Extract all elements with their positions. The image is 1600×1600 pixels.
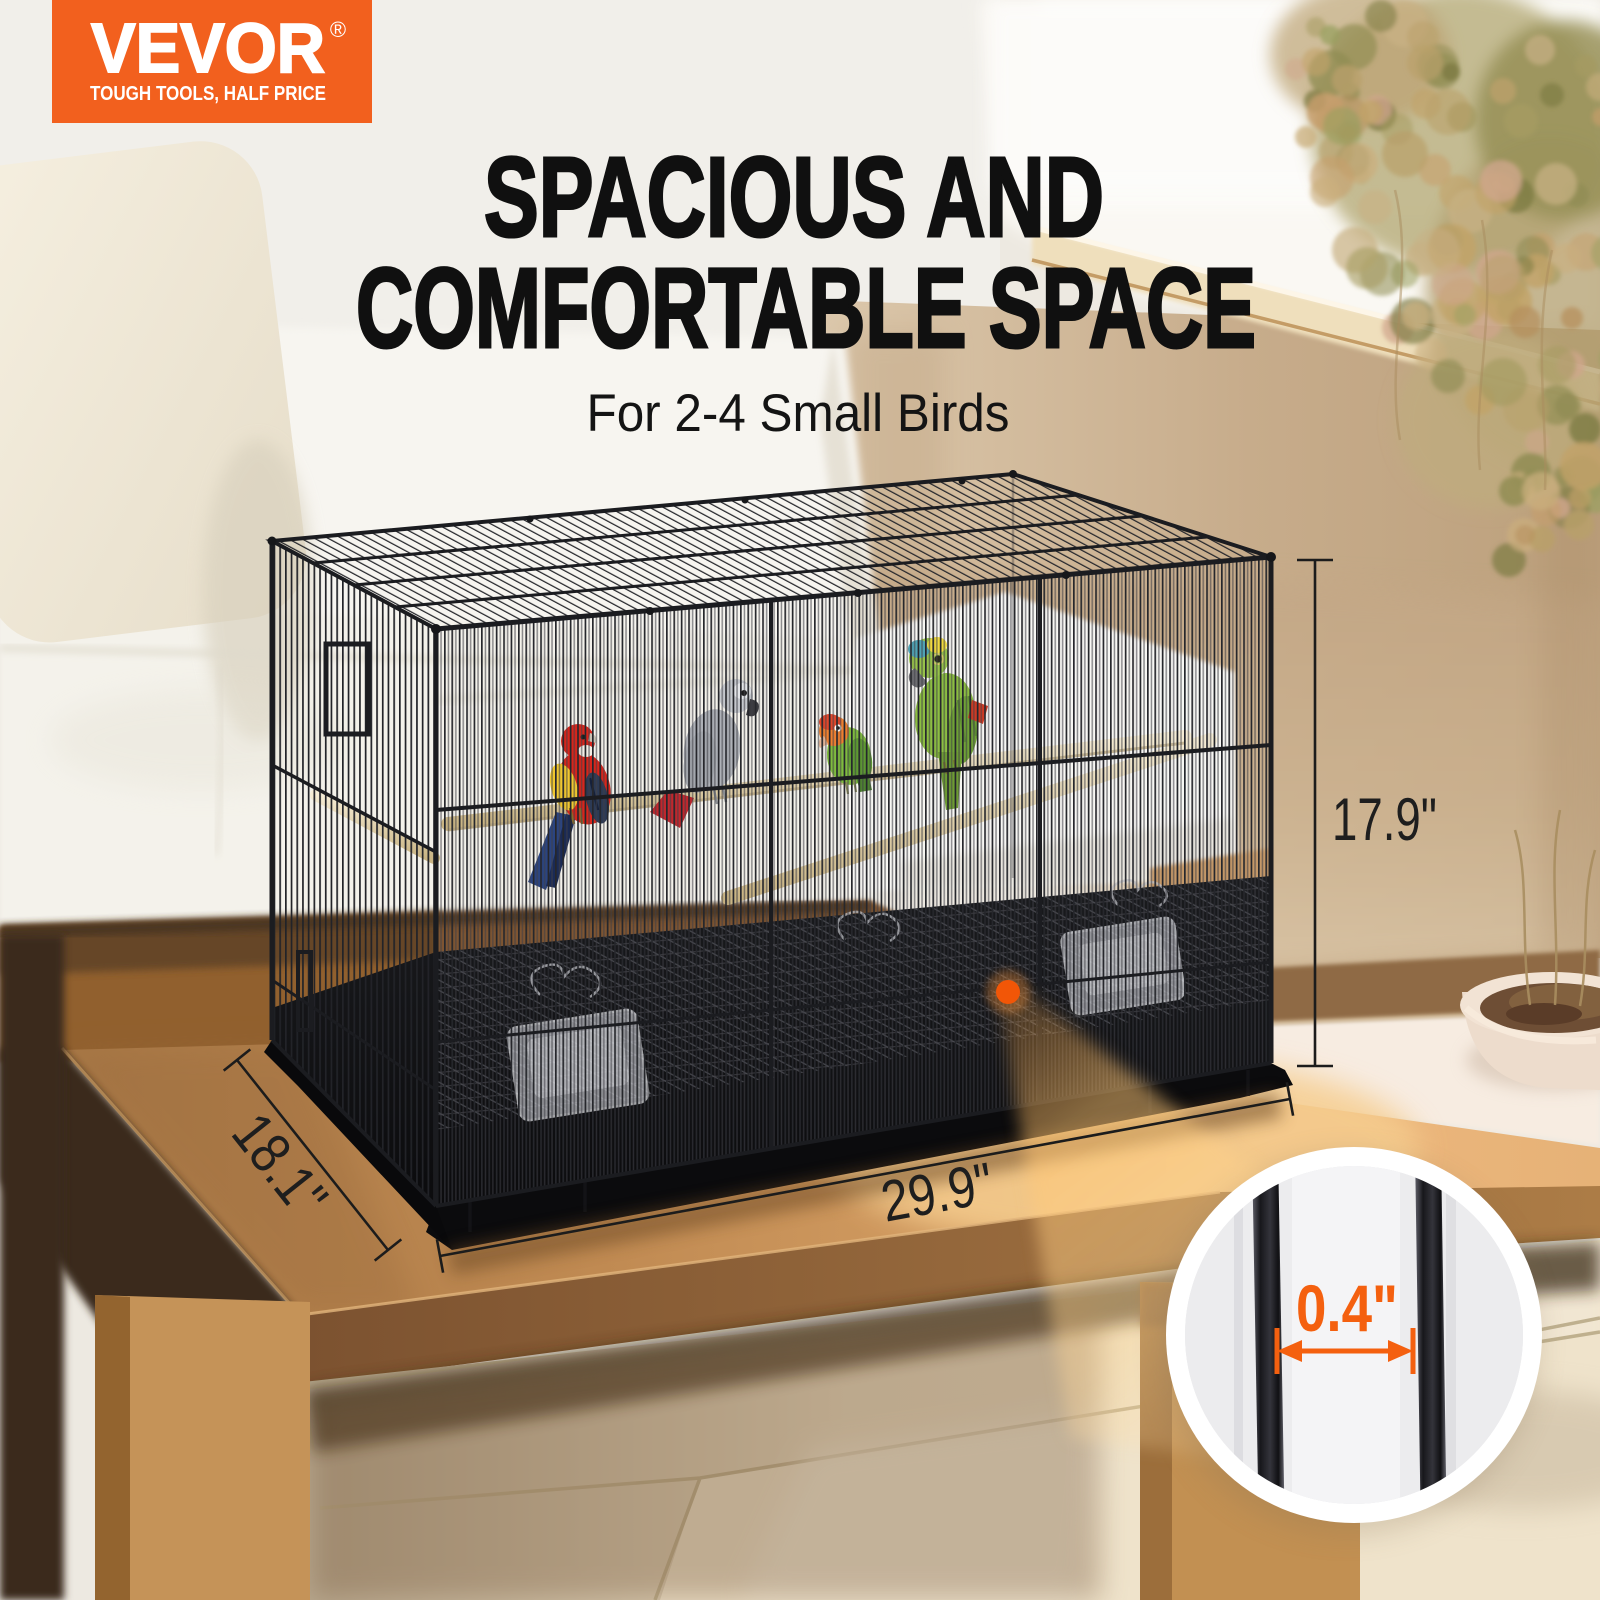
svg-text:®: ® bbox=[330, 17, 346, 42]
svg-text:VEVOR: VEVOR bbox=[91, 9, 325, 87]
svg-text:TOUGH TOOLS, HALF PRICE: TOUGH TOOLS, HALF PRICE bbox=[90, 83, 326, 105]
svg-text:SPACIOUS AND: SPACIOUS AND bbox=[484, 134, 1104, 260]
svg-text:For 2-4 Small Birds: For 2-4 Small Birds bbox=[587, 384, 1010, 443]
svg-text:0.4": 0.4" bbox=[1296, 1271, 1398, 1345]
svg-text:COMFORTABLE SPACE: COMFORTABLE SPACE bbox=[356, 245, 1256, 371]
svg-text:17.9": 17.9" bbox=[1332, 786, 1437, 853]
